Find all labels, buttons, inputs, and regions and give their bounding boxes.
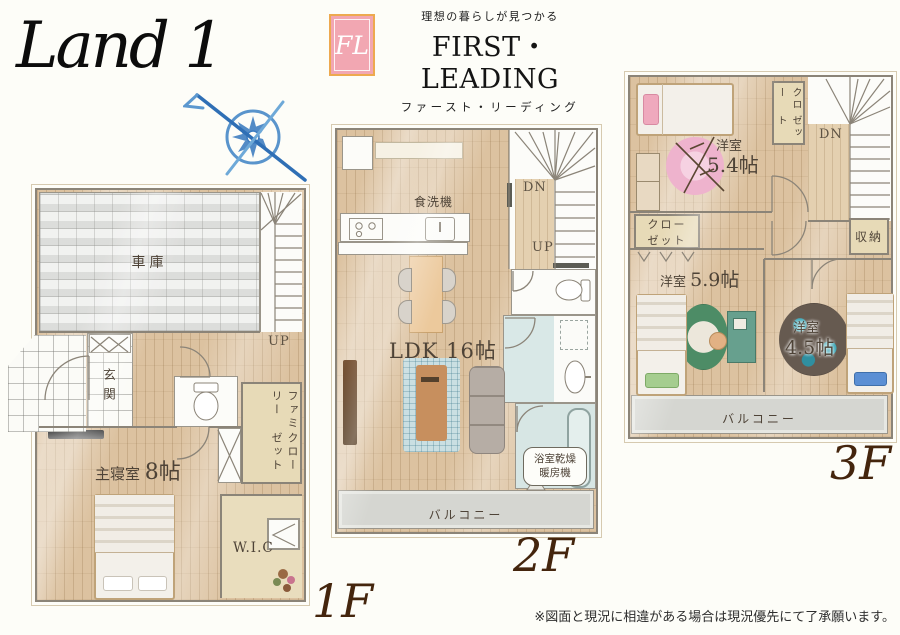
single-bed-45 xyxy=(846,293,894,394)
floor-label-1f: 1F xyxy=(312,574,373,628)
refrigerator xyxy=(342,136,373,170)
tv-board xyxy=(343,360,357,445)
double-bed xyxy=(94,494,175,600)
dining-chair xyxy=(442,268,456,292)
wall-segment xyxy=(507,183,512,207)
compass-icon xyxy=(183,84,317,196)
family-closet: ファミリー クローゼット xyxy=(241,382,302,484)
hanger-marks xyxy=(638,252,694,261)
desk-item xyxy=(733,318,747,330)
kitchen-cabinet xyxy=(375,142,463,159)
floor-label-2f: 2F xyxy=(513,528,574,582)
balcony-2f-label: バルコニー xyxy=(429,506,504,523)
wall-segment xyxy=(553,263,589,268)
dining-chair xyxy=(398,300,412,324)
bath-dryer-line1: 浴室乾燥 xyxy=(534,453,576,466)
bath-dryer-label: 浴室乾燥 暖房機 xyxy=(523,447,587,486)
staircase-1f xyxy=(260,192,302,332)
kitchen-sink-icon xyxy=(425,217,455,241)
counter-front xyxy=(338,242,468,255)
disclaimer-note: ※図面と現況に相違がある場合は現況優先にて了承願います。 xyxy=(534,606,895,625)
stove-icon xyxy=(349,218,383,240)
bed-duvet xyxy=(637,295,686,351)
balcony-2f: バルコニー xyxy=(338,490,594,529)
single-bed-59 xyxy=(636,294,687,396)
closet-54-col1: クロー xyxy=(776,87,803,115)
closet-54: クロー ゼット xyxy=(772,81,805,145)
room59-size: 5.9帖 xyxy=(690,269,739,291)
brand-kana: ファースト・リーディング xyxy=(376,99,604,115)
bed-pillow xyxy=(103,576,133,591)
single-bed-54 xyxy=(636,83,734,136)
entrance-label: 玄関 xyxy=(99,368,118,407)
closet-59-line1: クロー xyxy=(648,216,687,232)
closet-59: クロー ゼット xyxy=(634,214,700,249)
balcony-3f: バルコニー xyxy=(631,395,888,434)
coffee-table xyxy=(416,365,447,441)
floor-plan-sheet: Land 1 FL 理想の暮らしが見つかる FIRST・LEADING ファース… xyxy=(0,0,900,635)
storage: 収納 xyxy=(849,218,889,255)
storage-label: 収納 xyxy=(855,228,883,245)
master-bedroom-label: 主寝室 8帖 xyxy=(95,454,181,486)
desk-59 xyxy=(727,311,756,363)
bath-dryer-line2: 暖房機 xyxy=(539,467,571,480)
closet-59-line2: ゼット xyxy=(648,232,687,248)
room54-size: 5.4帖 xyxy=(707,149,759,178)
dishwasher-label: 食洗機 xyxy=(414,193,453,210)
balcony-3f-label: バルコニー xyxy=(722,410,797,427)
up-label-2f: UP xyxy=(532,240,554,255)
room45-size: 4.5帖 xyxy=(785,333,834,360)
bed-duvet xyxy=(95,495,174,553)
sofa xyxy=(469,366,505,454)
kitchen-counter xyxy=(340,213,470,242)
fl-monogram: FL xyxy=(331,16,373,74)
room59-label: 洋室 5.9帖 xyxy=(660,265,739,292)
master-bedroom-name: 主寝室 xyxy=(95,465,140,483)
dn-label-2f: DN xyxy=(523,180,547,195)
desk-shelf-54 xyxy=(636,153,660,211)
floor-plan-2f: 食洗機 DN UP 浴室乾燥 暖房機 LDK 16帖 xyxy=(335,128,598,534)
shelf-divider xyxy=(637,181,659,182)
washing-machine-icon xyxy=(560,320,588,350)
room59-name: 洋室 xyxy=(660,275,686,290)
first-leading-logo-badge: FL xyxy=(329,14,375,76)
bed-duvet xyxy=(847,294,893,349)
brand-block: 理想の暮らしが見つかる FIRST・LEADING ファースト・リーディング xyxy=(376,8,604,115)
washroom xyxy=(503,315,596,403)
shoe-cabinet xyxy=(89,334,131,353)
bed-seam xyxy=(662,84,663,135)
table-item xyxy=(421,377,439,382)
closet-54-col2: ゼット xyxy=(774,115,803,143)
toilet-room-2f xyxy=(511,269,596,315)
dn-label-3f: DN xyxy=(819,127,843,142)
garage-label: 車庫 xyxy=(132,252,168,272)
green-pillow xyxy=(645,373,680,388)
master-bedroom-size: 8帖 xyxy=(145,460,181,485)
brand-tagline: 理想の暮らしが見つかる xyxy=(376,8,604,24)
blue-pillow xyxy=(854,372,887,387)
hall-closet-cell xyxy=(218,428,241,483)
family-closet-label-1: ファミリー xyxy=(247,390,300,432)
dining-table xyxy=(409,256,443,333)
ldk-label: LDK 16帖 xyxy=(389,335,497,365)
garage-room: 車庫 xyxy=(39,192,260,332)
dining-chair xyxy=(398,268,412,292)
floor-plan-3f: 洋室 5.4帖 クロー ゼット DN クロー ゼット 収納 洋室 5.9帖 洋 xyxy=(628,75,893,439)
toilet-room-1f xyxy=(174,376,238,427)
wic-label: W.I.C xyxy=(233,540,274,556)
family-closet-label-2: クローゼット xyxy=(243,432,300,482)
brand-name: FIRST・LEADING xyxy=(376,25,604,95)
up-label-1f: UP xyxy=(268,334,290,349)
floor-label-3f: 3F xyxy=(830,436,891,490)
entrance-approach-tiles xyxy=(8,335,86,432)
chair-59 xyxy=(709,332,727,350)
pink-pillow xyxy=(643,94,659,125)
dining-chair xyxy=(442,300,456,324)
bed-pillow xyxy=(138,576,168,591)
